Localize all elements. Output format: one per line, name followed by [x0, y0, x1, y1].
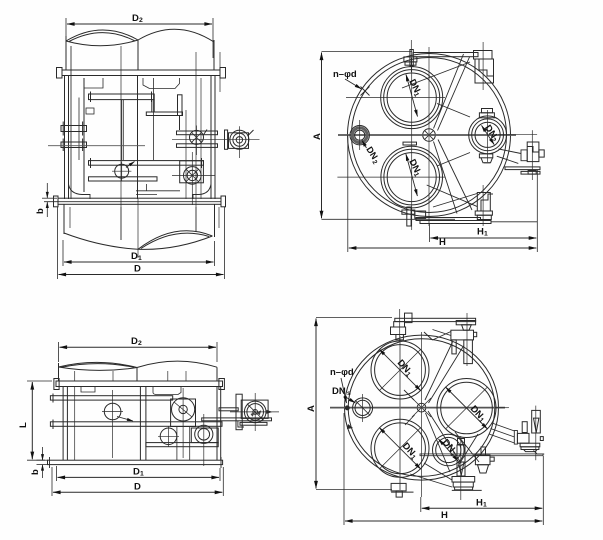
svg-text:D: D — [133, 467, 140, 478]
svg-text:H: H — [441, 510, 448, 521]
svg-text:1: 1 — [138, 255, 142, 262]
svg-text:H: H — [439, 237, 446, 248]
svg-text:D: D — [132, 13, 139, 24]
svg-text:A: A — [306, 405, 317, 412]
svg-text:2: 2 — [139, 17, 143, 24]
svg-text:A: A — [312, 133, 323, 140]
svg-text:D: D — [131, 251, 138, 262]
svg-text:1: 1 — [484, 231, 488, 238]
svg-text:D: D — [134, 264, 141, 275]
svg-text:L: L — [18, 422, 29, 428]
svg-text:1: 1 — [483, 502, 487, 509]
svg-text:b: b — [30, 469, 41, 475]
svg-text:b: b — [35, 208, 46, 214]
svg-text:D: D — [131, 336, 138, 347]
svg-text:1: 1 — [140, 471, 144, 478]
svg-text:H: H — [476, 498, 483, 509]
svg-text:H: H — [477, 227, 484, 238]
svg-text:n–φd: n–φd — [333, 69, 357, 80]
svg-text:s: s — [347, 390, 351, 397]
svg-text:D: D — [134, 482, 141, 493]
svg-text:2: 2 — [138, 340, 142, 347]
svg-text:n–φd: n–φd — [330, 367, 354, 378]
